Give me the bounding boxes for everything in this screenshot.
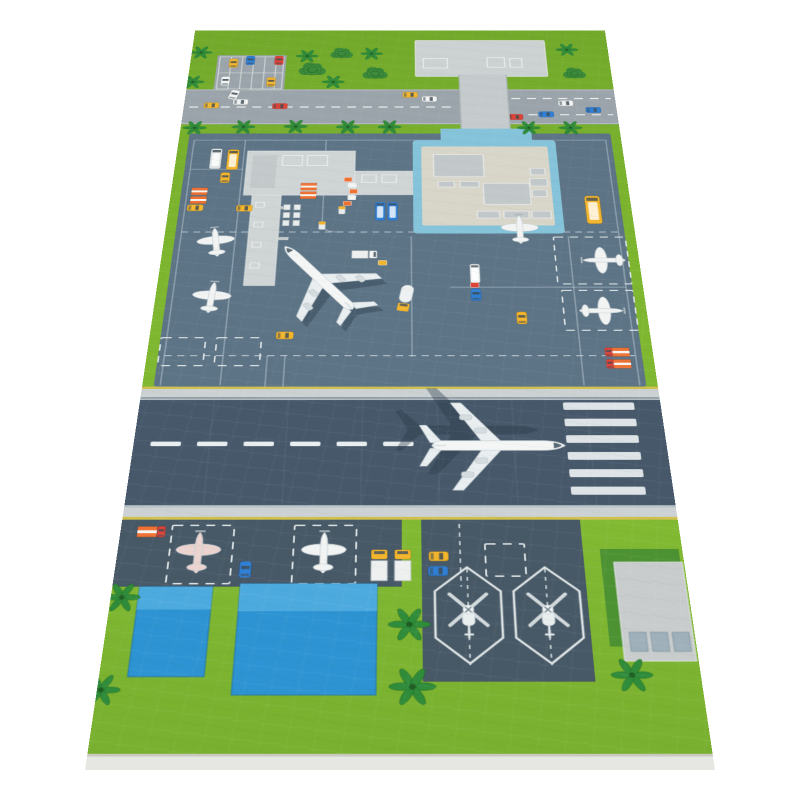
airport-play-rug — [85, 30, 715, 770]
product-photo-stage — [0, 0, 800, 800]
rug-bottom-edge — [85, 754, 715, 770]
fabric-texture — [87, 30, 712, 754]
